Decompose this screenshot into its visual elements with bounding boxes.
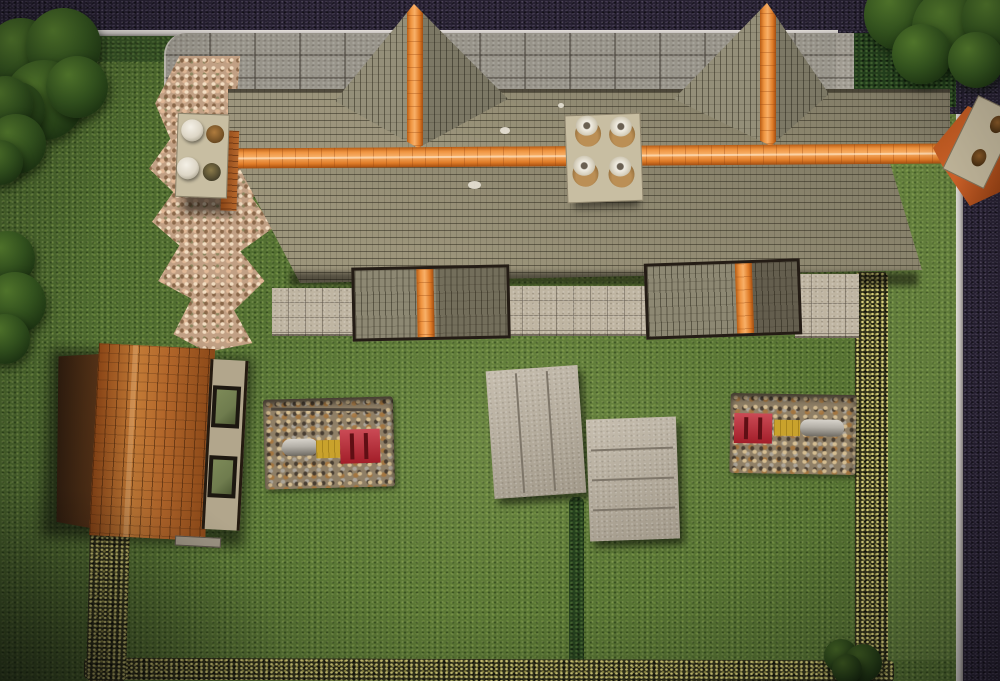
porch-west-ridge <box>416 269 434 337</box>
silver-cylinder <box>800 419 844 437</box>
pad-upper <box>486 365 587 499</box>
gable-east-ridge <box>760 0 776 148</box>
patio-center <box>506 286 648 336</box>
pad-groove <box>592 477 674 482</box>
shed-roof-ridge <box>123 345 138 537</box>
red-block <box>340 429 381 464</box>
hedge-center <box>569 497 584 675</box>
tree-clump <box>892 24 952 84</box>
porch-west-shade <box>435 267 507 336</box>
pad-groove <box>546 371 556 491</box>
tree-clump <box>832 654 862 681</box>
shed-window-glass <box>212 459 234 494</box>
silver-cylinder <box>282 438 318 456</box>
tree-left <box>0 226 58 366</box>
patio-east <box>795 274 859 338</box>
hedge-bottom <box>84 658 894 681</box>
pad-groove <box>593 507 675 512</box>
tree-clump <box>948 32 1000 88</box>
red-block-slot <box>758 417 762 439</box>
bed-twig <box>271 408 381 412</box>
shed-window <box>207 455 237 498</box>
gable-west-ridge <box>407 2 423 150</box>
chimney-east-flue <box>987 113 1000 135</box>
red-block-slot <box>744 417 748 439</box>
porch-east-shade <box>752 261 799 333</box>
bush-bottom-right <box>824 634 886 681</box>
shed-roof <box>89 343 215 541</box>
chimney-east-flue <box>969 147 989 169</box>
shed-window-glass <box>215 389 237 424</box>
porch-east-ridge <box>735 263 754 334</box>
roof-speck <box>558 103 564 108</box>
lawn-light-right <box>886 100 962 660</box>
tree-top-right <box>854 0 1000 100</box>
path-left <box>86 524 130 681</box>
shed-window <box>211 385 241 428</box>
tree-top-left-small <box>0 76 58 186</box>
red-block-slot <box>364 433 369 459</box>
red-block <box>734 413 773 444</box>
chimney-center <box>564 109 649 212</box>
bed-west <box>263 396 395 489</box>
porch-west <box>351 264 511 341</box>
red-block-slot <box>350 433 355 459</box>
model-photo <box>0 0 1000 681</box>
pad-groove <box>591 447 673 452</box>
pad-lower <box>586 416 680 541</box>
patio-west <box>272 288 356 336</box>
yellow-block <box>774 420 800 436</box>
porch-east <box>644 258 803 339</box>
roof-speck <box>500 127 510 134</box>
shed <box>47 339 253 549</box>
yellow-block <box>316 440 340 459</box>
bed-east <box>729 393 856 475</box>
pad-groove <box>515 373 525 493</box>
chimney-west <box>174 113 248 219</box>
road-top <box>0 0 1000 33</box>
hedge-right <box>855 272 888 677</box>
roof-speck <box>468 181 481 189</box>
